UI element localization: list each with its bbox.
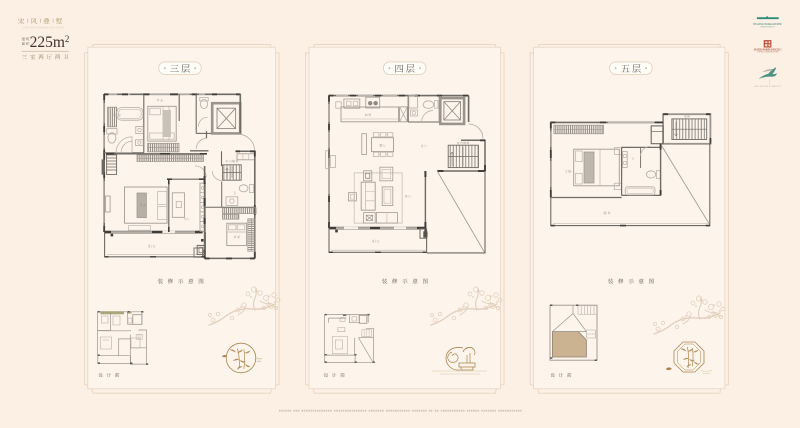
svg-text:GREEN TOWN GROUP: GREEN TOWN GROUP [760, 26, 776, 28]
svg-text:SONG FENG STACKED VILLA HOUSE: SONG FENG STACKED VILLA HOUSE [22, 27, 64, 30]
svg-text:CENTRAL CHINA REAL ESTATE: CENTRAL CHINA REAL ESTATE [757, 51, 780, 54]
svg-text:LAKE VIEW YAN GUI MANSION: LAKE VIEW YAN GUI MANSION [754, 85, 781, 88]
svg-text:225m2: 225m2 [30, 34, 70, 51]
